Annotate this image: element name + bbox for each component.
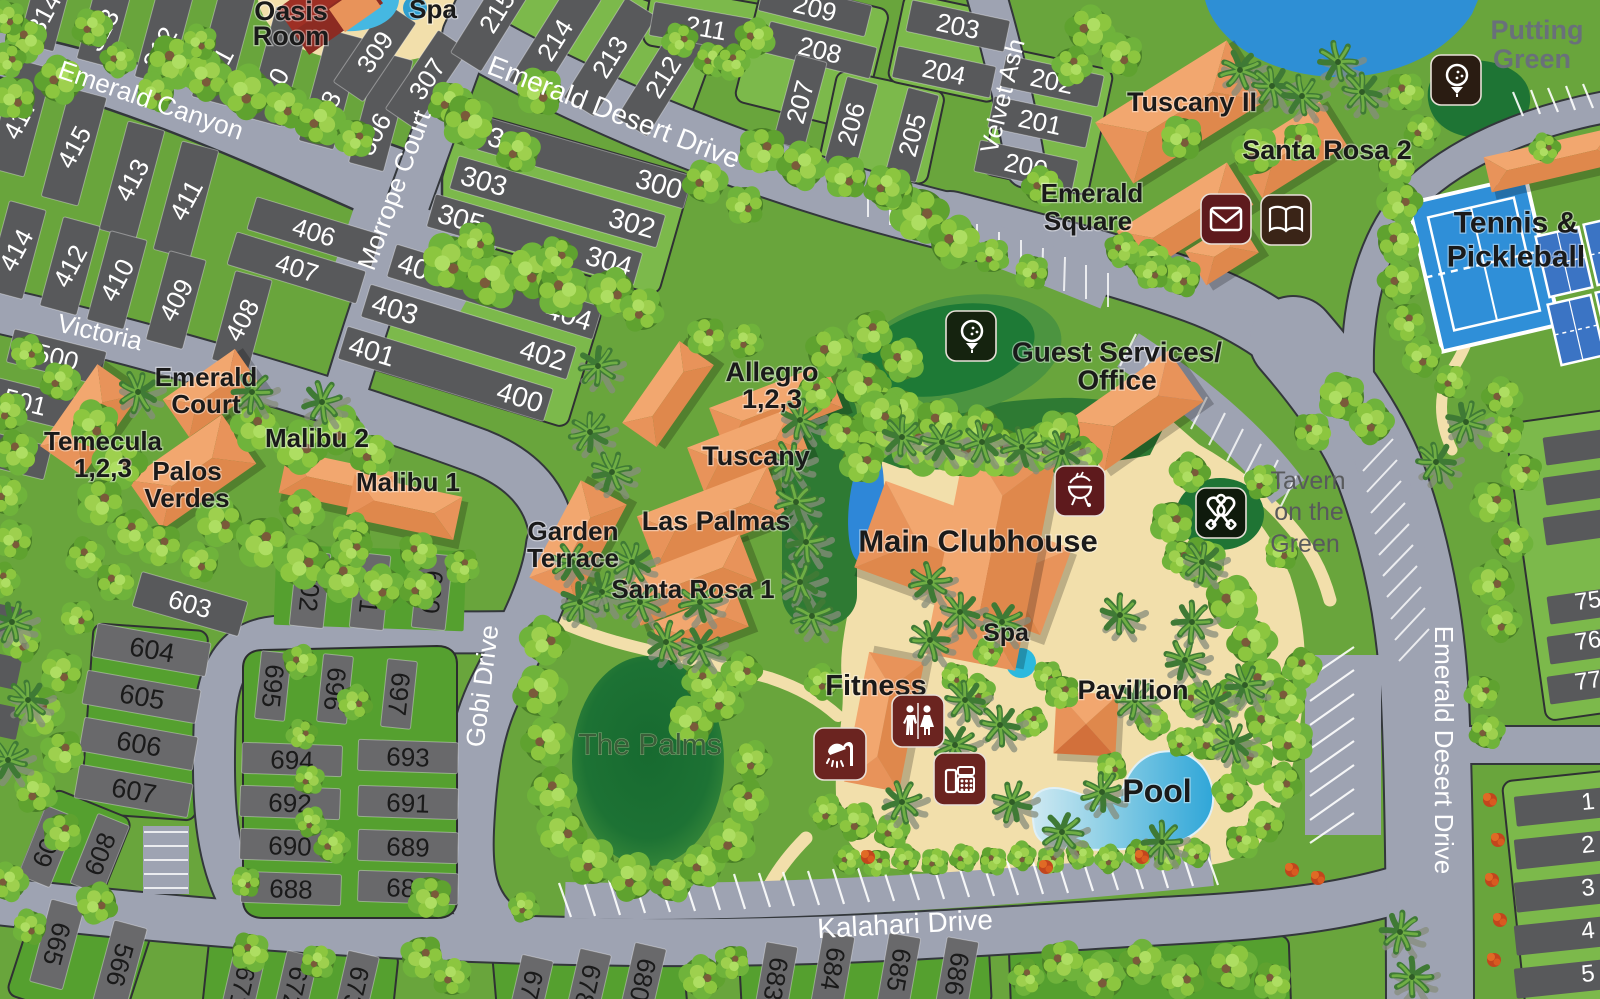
svg-text:Spa: Spa bbox=[409, 0, 457, 24]
svg-text:Santa Rosa 2: Santa Rosa 2 bbox=[1242, 135, 1412, 165]
svg-text:Square: Square bbox=[1044, 206, 1132, 236]
svg-text:Emerald Desert Drive: Emerald Desert Drive bbox=[1429, 626, 1459, 875]
svg-text:1,2,3: 1,2,3 bbox=[74, 453, 132, 483]
svg-text:Court: Court bbox=[171, 389, 241, 419]
svg-text:Malibu 2: Malibu 2 bbox=[265, 423, 369, 453]
svg-text:689: 689 bbox=[386, 831, 430, 862]
svg-text:Palos: Palos bbox=[152, 456, 221, 486]
svg-text:Pool: Pool bbox=[1122, 773, 1191, 809]
svg-text:697: 697 bbox=[382, 671, 416, 717]
svg-text:Temecula: Temecula bbox=[44, 426, 163, 456]
svg-text:Spa: Spa bbox=[983, 619, 1030, 647]
svg-text:Tavern: Tavern bbox=[1270, 467, 1345, 495]
svg-text:3: 3 bbox=[1580, 874, 1596, 902]
svg-text:Office: Office bbox=[1077, 365, 1156, 396]
svg-text:on the: on the bbox=[1274, 498, 1344, 526]
svg-text:1: 1 bbox=[1580, 788, 1596, 816]
svg-text:Green: Green bbox=[1270, 530, 1339, 558]
svg-text:Terrace: Terrace bbox=[527, 543, 619, 573]
svg-text:Santa Rosa 1: Santa Rosa 1 bbox=[611, 574, 774, 604]
svg-text:Green: Green bbox=[1493, 44, 1571, 74]
svg-text:Verdes: Verdes bbox=[144, 483, 229, 513]
svg-text:Room: Room bbox=[253, 21, 330, 51]
svg-text:77: 77 bbox=[1573, 666, 1600, 696]
svg-text:Emerald: Emerald bbox=[155, 362, 258, 392]
svg-text:Tuscany: Tuscany bbox=[702, 441, 810, 471]
svg-text:695: 695 bbox=[256, 663, 290, 709]
svg-text:75: 75 bbox=[1573, 586, 1600, 616]
svg-text:Garden: Garden bbox=[527, 516, 618, 546]
svg-text:688: 688 bbox=[269, 873, 313, 904]
svg-text:The Palms: The Palms bbox=[578, 729, 721, 762]
svg-text:Allegro: Allegro bbox=[725, 357, 818, 387]
svg-text:2: 2 bbox=[1580, 831, 1596, 859]
svg-text:693: 693 bbox=[386, 741, 430, 772]
svg-text:76: 76 bbox=[1573, 626, 1600, 656]
svg-text:Putting: Putting bbox=[1491, 15, 1584, 45]
svg-text:5: 5 bbox=[1580, 960, 1596, 988]
svg-text:Las Palmas: Las Palmas bbox=[642, 506, 791, 536]
svg-text:4: 4 bbox=[1580, 917, 1596, 945]
svg-text:Tuscany II: Tuscany II bbox=[1127, 87, 1257, 117]
svg-text:Malibu 1: Malibu 1 bbox=[356, 467, 460, 497]
svg-text:691: 691 bbox=[386, 787, 430, 818]
svg-text:Pickleball: Pickleball bbox=[1447, 241, 1585, 274]
svg-text:Tennis &: Tennis & bbox=[1454, 207, 1578, 240]
svg-text:Guest Services/: Guest Services/ bbox=[1012, 337, 1222, 368]
svg-text:Emerald: Emerald bbox=[1041, 178, 1144, 208]
svg-text:1,2,3: 1,2,3 bbox=[742, 384, 802, 414]
svg-text:Pavillion: Pavillion bbox=[1077, 675, 1188, 705]
svg-text:Main Clubhouse: Main Clubhouse bbox=[858, 524, 1097, 559]
